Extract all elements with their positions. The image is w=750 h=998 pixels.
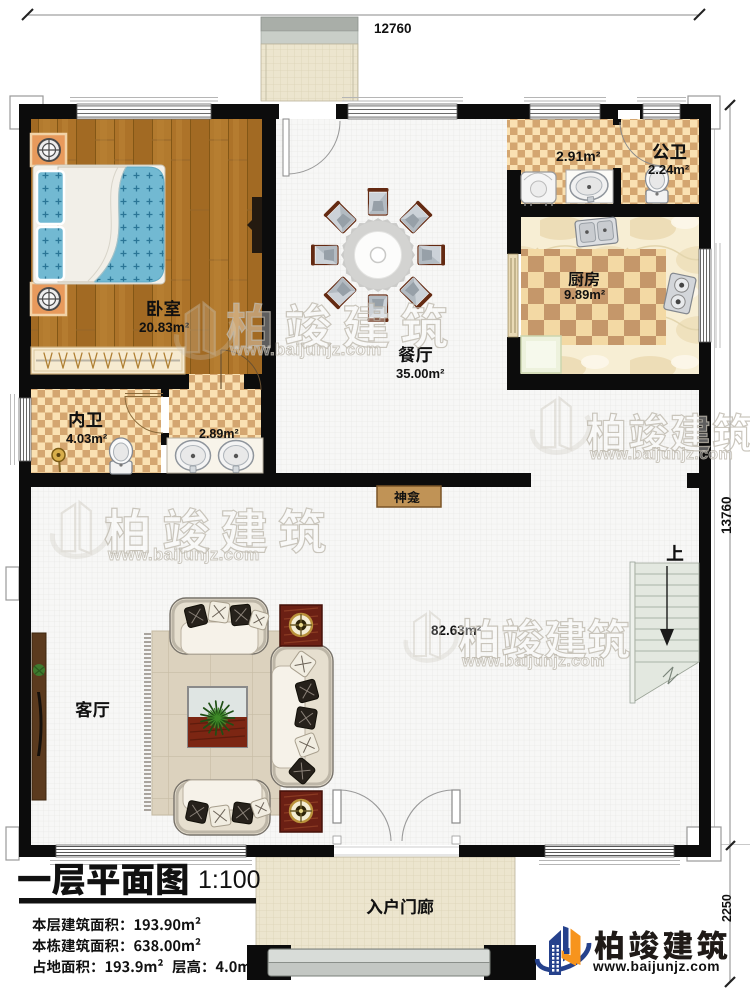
svg-text:2.91m²: 2.91m² bbox=[556, 148, 601, 164]
svg-text:1:100: 1:100 bbox=[198, 866, 261, 894]
svg-text:13760: 13760 bbox=[719, 496, 734, 534]
svg-text:35.00m²: 35.00m² bbox=[396, 366, 445, 381]
svg-text:www.baijunjz.com: www.baijunjz.com bbox=[592, 959, 720, 974]
svg-text:4.03m²: 4.03m² bbox=[66, 431, 108, 446]
svg-text:2.24m²: 2.24m² bbox=[648, 162, 690, 177]
svg-text:2250: 2250 bbox=[720, 894, 734, 922]
svg-text:www.baijunjz.com: www.baijunjz.com bbox=[229, 340, 382, 359]
svg-text:www.baijunjz.com: www.baijunjz.com bbox=[589, 446, 733, 463]
svg-text:www.baijunjz.com: www.baijunjz.com bbox=[107, 545, 260, 564]
svg-text:www.baijunjz.com: www.baijunjz.com bbox=[461, 653, 605, 670]
svg-text:9.89m²: 9.89m² bbox=[564, 287, 606, 302]
svg-text:12760: 12760 bbox=[374, 21, 412, 36]
svg-text:20.83m²: 20.83m² bbox=[139, 320, 190, 335]
svg-text:2.89m²: 2.89m² bbox=[199, 427, 239, 441]
